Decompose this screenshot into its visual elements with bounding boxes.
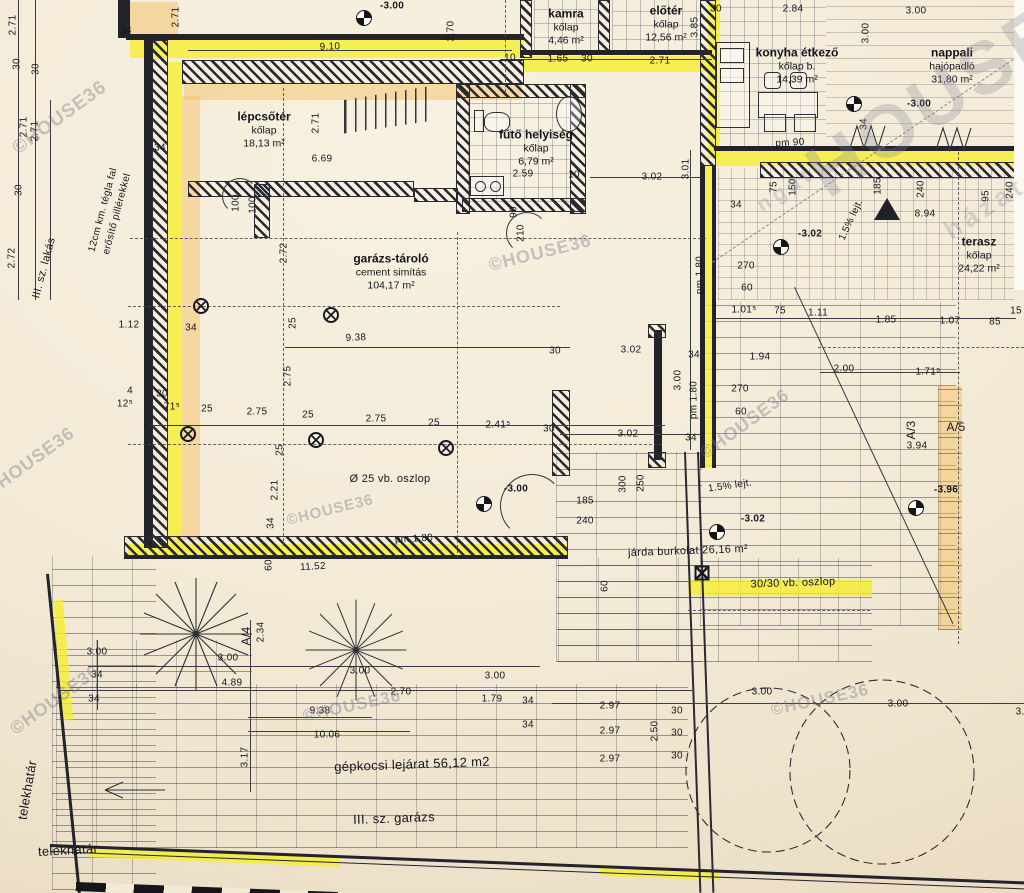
dimension-text: 60 [741,283,753,294]
plan-label: 30/30 vb. oszlop [750,576,835,591]
dimension-text: 1.71⁵ [915,367,940,378]
level-text: -3.00 [504,484,528,495]
level-text: -3.96 [934,485,958,496]
dimension-text: 3.94 [907,441,928,452]
dimension-text: 10 [504,53,516,64]
dimension-text: 100 [248,196,259,214]
dimension-text: 210 [516,224,527,242]
dimension-text: 2.71 [8,15,19,36]
dimension-text: 34 [685,433,697,444]
dimension-text: pm 1.80 [689,381,700,419]
dimension-text: 3.02 [618,429,639,440]
floor-plan-sheet: 2.7130302.712.71302.72342.719.102.70101.… [0,0,1024,893]
round-column-icon [180,426,196,442]
dimension-text: 25 [428,418,440,429]
dimension-text: 3.00 [87,647,108,658]
dimension-text: 1.65 [548,54,569,65]
dimension-text: 3.00 [218,653,239,664]
dimension-text: 30 [14,184,25,196]
dimension-text: A/4 [239,627,253,646]
dimension-text: 60 [600,580,611,592]
dimension-text: 2.21 [270,480,281,501]
round-column-icon [193,298,209,314]
dimension-text: 2.75 [283,366,294,387]
dimension-text: 6.69 [312,154,333,165]
dimension-text: 10 [568,170,580,181]
dimension-text: 1.5% lejt. [707,477,752,494]
dimension-text: 240 [576,516,594,527]
watermark-text: ©HOUSE36 [769,680,871,720]
dimension-text: 2.50 [650,721,661,742]
dimension-text: 1.94 [750,352,771,363]
watermark-text: HOUSE [791,0,1024,214]
dimension-text: 34 [522,696,534,707]
dimension-text: 100 [231,194,242,212]
dimension-text: 4.89 [222,678,243,689]
room-label-konyha: konyha étkezőkőlap b.14,39 m² [756,45,839,86]
watermark-text: ©HOUSE36 [285,491,376,529]
level-text: -3.02 [798,229,822,240]
dimension-text: pm 1.80 [395,533,434,546]
room-label-terasz: teraszkőlap24,22 m² [958,234,999,275]
dimension-text: 34 [88,694,100,705]
dimension-text: 8.94 [915,209,936,220]
dimension-text: 1.11 [808,308,828,319]
round-column-icon [323,307,339,323]
dimension-text: 2.75 [247,407,268,418]
dimension-text: 3.00 [752,687,773,698]
dimension-text: 25 [201,404,213,415]
dimension-text: 2.84 [783,4,804,15]
dimension-text: 2.70 [446,21,457,42]
level-text: -3.00 [380,1,404,12]
dimension-text: 30 [671,728,683,739]
dimension-text: 1.01⁵ [731,305,756,316]
watermark-text: ngat [752,162,819,217]
room-label-eloter: előtérkőlap12,56 m² [645,3,686,44]
dimension-text: A/5 [947,420,966,434]
dimension-text: 2.71 [171,7,182,28]
plan-label: III. sz. lakás [30,236,58,299]
dimension-text: 34 [154,143,166,154]
dimension-text: 2.71 [650,56,671,67]
dimension-text: 71⁵ [164,402,180,413]
dimension-text: 3.00 [906,6,927,17]
dimension-text: 2.41⁵ [485,420,510,431]
dimension-text: 4 [127,386,133,397]
dimension-text: 30 [12,58,23,70]
dimension-text: 30 [543,424,555,435]
dimension-text: 30 [581,54,593,65]
dimension-text: 60 [264,559,275,571]
dimension-text: A/3 [904,421,918,440]
level-marker-icon [709,524,725,540]
dimension-text: 2.97 [600,754,621,765]
dimension-text: pm 1.80 [695,256,706,294]
dimension-text: 270 [737,261,755,272]
dimension-text: 3.01 [681,159,692,180]
dimension-text: 240 [916,180,927,198]
level-marker-icon [356,10,372,26]
dimension-text: 25 [288,317,299,329]
dimension-text: 3.02 [642,172,663,183]
dimension-text: 11.52 [300,561,326,573]
dimension-text: 1.79 [482,694,503,705]
dimension-text: 30 [31,63,42,75]
level-marker-icon [908,500,924,516]
dimension-text: 1.07 [940,316,961,327]
dimension-text: 2.72 [279,243,290,264]
dimension-text: 3.00 [861,23,872,44]
dimension-text: 3.85 [690,17,701,38]
dimension-text: 300 [618,475,629,493]
dimension-text: 34 [185,323,197,334]
plan-label: gépkocsi lejárat 56,12 m2 [334,754,490,774]
dimension-text: 3.00 [350,666,371,677]
level-marker-icon [773,239,789,255]
plan-label: telekhatár [38,841,99,859]
dimension-text: 30 [156,389,168,400]
dimension-text: 25 [302,410,314,421]
dimension-text: 34 [730,200,742,211]
room-label-garazs: garázs-tárolócement simítás104,17 m² [353,251,428,292]
level-marker-icon [476,496,492,512]
dimension-text: 30 [671,751,683,762]
dimension-text: 3.00 [888,699,909,710]
dimension-text: 9.38 [345,332,366,344]
plan-label: Ø 25 vb. oszlop [350,473,431,485]
dimension-text: 2.75 [366,414,387,425]
room-label-kamra: kamrakőlap4,46 m² [548,6,584,47]
dimension-text: 34 [522,720,534,731]
dimension-text: 2.34 [256,622,267,643]
dimension-text: 12⁵ [117,399,133,410]
square-column-icon [695,566,710,581]
watermark-text: ©HOUSE36 [301,686,403,726]
dimension-text: 3.02 [621,345,642,356]
round-column-icon [308,432,324,448]
dimension-text: 30 [671,706,683,717]
dimension-text: 3.00 [1016,707,1024,718]
dimension-text: 250 [636,474,647,492]
dimension-text: 90 [509,206,520,218]
dimension-text: 3.00 [485,671,506,682]
dimension-text: 34 [266,517,277,529]
dimension-text: 75 [774,306,786,317]
plan-label: III. sz. garázs [353,809,435,827]
dimension-text: 2.97 [600,726,621,737]
watermark-text: ©HOUSE36 [486,230,593,276]
dimension-text: 1.12 [119,320,140,331]
dimension-text: 34 [688,350,700,361]
watermark-text: ©HOUSE36 [696,385,794,464]
dimension-text: 25 [275,444,286,456]
dimension-text: 30 [549,346,561,357]
dimension-text: 2.59 [513,169,534,180]
dimension-text: 2.00 [834,364,855,375]
plan-label: járda burkolat 26,16 m² [628,543,748,559]
dimension-text: 10.06 [314,730,341,741]
dimension-text: 85 [989,317,1001,328]
room-label-lepcsoter: lépcsőtérkőlap18,13 m² [237,109,290,150]
dimension-text: 1.85 [876,315,897,326]
dimension-text: 3.17 [240,747,251,768]
dimension-text: 9.10 [319,41,340,53]
dimension-text: 30 [710,4,722,15]
room-label-futo: fűtő helyiségkőlap6,79 m² [499,127,573,168]
plan-label: telekhatár [14,759,39,821]
annotation-layer: 2.7130302.712.71302.72342.719.102.70101.… [0,0,1024,893]
dimension-text: 3.00 [673,370,684,391]
dimension-text: 185 [576,496,594,507]
level-text: -3.02 [741,514,765,525]
dimension-text: 2.72 [7,248,18,269]
dimension-text: 2.97 [600,701,621,712]
dimension-text: 15 [1010,306,1022,317]
dimension-text: 34 [120,26,132,37]
dimension-text: 2.71 [311,113,322,134]
round-column-icon [438,440,454,456]
dimension-text: 270 [731,384,749,395]
watermark-text: ©HOUSE36 [0,423,79,502]
